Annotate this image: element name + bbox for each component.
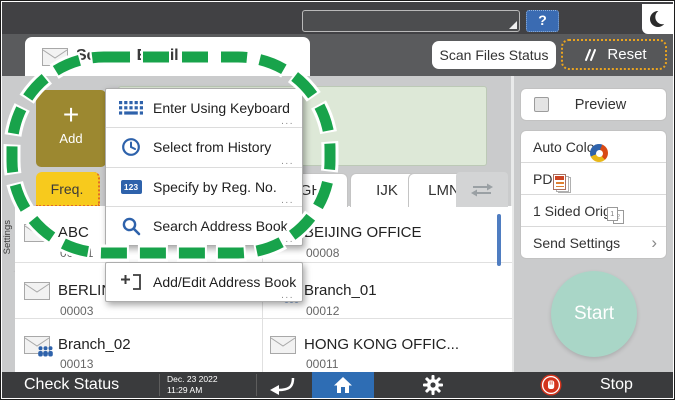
- add-destination-button[interactable]: + Add: [36, 90, 106, 167]
- system-message-box[interactable]: [302, 10, 520, 32]
- history-clock-icon: [119, 137, 143, 157]
- entry-number: 00013: [60, 357, 93, 371]
- bottom-system-bar: Check Status Dec. 23 2022 11:29 AM: [2, 372, 673, 398]
- envelope-icon: [24, 224, 50, 242]
- reset-button[interactable]: Reset: [561, 39, 667, 70]
- envelope-icon: [24, 282, 50, 300]
- entry-number: 00012: [306, 304, 339, 318]
- more-options-dots: ...: [281, 290, 294, 301]
- chevron-right-icon: ›: [651, 233, 657, 253]
- check-status-button[interactable]: Check Status: [24, 372, 119, 398]
- divider: [159, 374, 160, 396]
- one-sided-original-icon: 2 1: [606, 206, 626, 226]
- entry-number: 00008: [306, 246, 339, 260]
- registration-number-icon: 123: [119, 180, 143, 194]
- menu-item-add-edit-address-book[interactable]: Add/Edit Address Book ...: [106, 263, 302, 301]
- date-text: Dec. 23 2022: [167, 374, 218, 385]
- sort-arrows-icon: [469, 181, 495, 199]
- date-time-display: Dec. 23 2022 11:29 AM: [167, 374, 218, 396]
- add-edit-address-book-panel: Add/Edit Address Book ...: [105, 262, 303, 302]
- setting-file-format[interactable]: PDF: [521, 162, 666, 194]
- keyboard-icon: [119, 101, 143, 115]
- top-status-strip: ?: [2, 2, 673, 34]
- entry-name: Branch_01: [304, 282, 377, 299]
- more-options-dots: ...: [281, 156, 294, 167]
- stop-button[interactable]: Stop: [600, 372, 633, 398]
- more-options-dots: ...: [281, 116, 294, 127]
- menu-item-label: Add/Edit Address Book: [153, 274, 296, 290]
- search-icon: [119, 216, 143, 236]
- add-label: Add: [36, 132, 106, 146]
- email-envelope-icon: [42, 48, 68, 66]
- entry-number: 00001: [60, 246, 93, 260]
- reset-slashes-icon: [581, 48, 597, 62]
- menu-item-label: Select from History: [153, 139, 271, 155]
- setting-send-settings[interactable]: Send Settings ›: [521, 226, 666, 258]
- switch-display-order-button[interactable]: [456, 172, 508, 207]
- page-title: Scan to Email: [76, 47, 178, 65]
- menu-item-search-address-book[interactable]: Search Address Book ...: [106, 206, 302, 245]
- auto-color-icon: [590, 144, 608, 162]
- plus-icon: +: [36, 98, 106, 132]
- pdf-file-icon: [552, 174, 572, 194]
- help-button[interactable]: ?: [526, 10, 559, 32]
- stop-hand-icon: [540, 374, 562, 396]
- original-sides-label: 1 Sided Orig.: [533, 203, 615, 219]
- side-vertical-tab[interactable]: Settings: [1, 220, 14, 254]
- menu-item-specify-by-reg-no[interactable]: 123 Specify by Reg. No. ...: [106, 167, 302, 206]
- divider: [256, 374, 257, 396]
- back-arrow-button[interactable]: [268, 375, 296, 395]
- entry-number: 00003: [60, 304, 93, 318]
- entry-name: Branch_02: [58, 336, 131, 353]
- more-options-dots: ...: [281, 195, 294, 206]
- reset-label: Reset: [607, 46, 646, 63]
- menu-item-label: Specify by Reg. No.: [153, 179, 277, 195]
- entry-number: 00011: [306, 357, 338, 371]
- side-tab-label: Settings: [1, 220, 14, 254]
- home-button[interactable]: [312, 372, 374, 398]
- entry-name: BEIJING OFFICE: [304, 224, 422, 241]
- entry-name: ABC: [58, 224, 89, 241]
- crescent-moon-icon: [649, 9, 669, 29]
- menu-item-select-from-history[interactable]: Select from History ...: [106, 127, 302, 166]
- setting-original-sides[interactable]: 1 Sided Orig. 2 1: [521, 194, 666, 226]
- time-text: 11:29 AM: [167, 385, 218, 396]
- preview-toggle-button[interactable]: Preview: [520, 88, 667, 121]
- envelope-icon: [270, 336, 296, 354]
- printer-touch-screen: ? Scan to Email Scan Files Status Reset …: [0, 0, 675, 400]
- start-button[interactable]: Start: [551, 271, 637, 357]
- add-destination-popup: Enter Using Keyboard ... Select from His…: [105, 88, 303, 246]
- scan-files-status-button[interactable]: Scan Files Status: [432, 41, 556, 69]
- home-icon: [333, 376, 353, 394]
- message-expand-handle-icon: [509, 21, 517, 29]
- setting-color-mode[interactable]: Auto Color: [521, 131, 666, 162]
- tab-frequent[interactable]: Freq.: [36, 172, 100, 207]
- scan-settings-group: Auto Color PDF 1 Sided Orig. 2 1 Send Se…: [520, 130, 667, 259]
- start-label: Start: [574, 303, 614, 325]
- settings-gear-button[interactable]: [422, 374, 444, 396]
- send-settings-label: Send Settings: [533, 235, 620, 251]
- menu-item-label: Enter Using Keyboard: [153, 100, 290, 116]
- energy-saver-button[interactable]: [642, 4, 675, 34]
- menu-item-enter-using-keyboard[interactable]: Enter Using Keyboard ...: [106, 89, 302, 127]
- preview-label: Preview: [521, 97, 666, 113]
- more-options-dots: ...: [281, 234, 294, 245]
- row-divider: [15, 318, 512, 319]
- group-icon: [38, 346, 53, 357]
- list-scrollbar[interactable]: [497, 214, 501, 266]
- add-edit-address-book-icon: [119, 273, 143, 291]
- menu-item-label: Search Address Book: [153, 218, 288, 234]
- entry-name: HONG KONG OFFIC...: [304, 336, 459, 353]
